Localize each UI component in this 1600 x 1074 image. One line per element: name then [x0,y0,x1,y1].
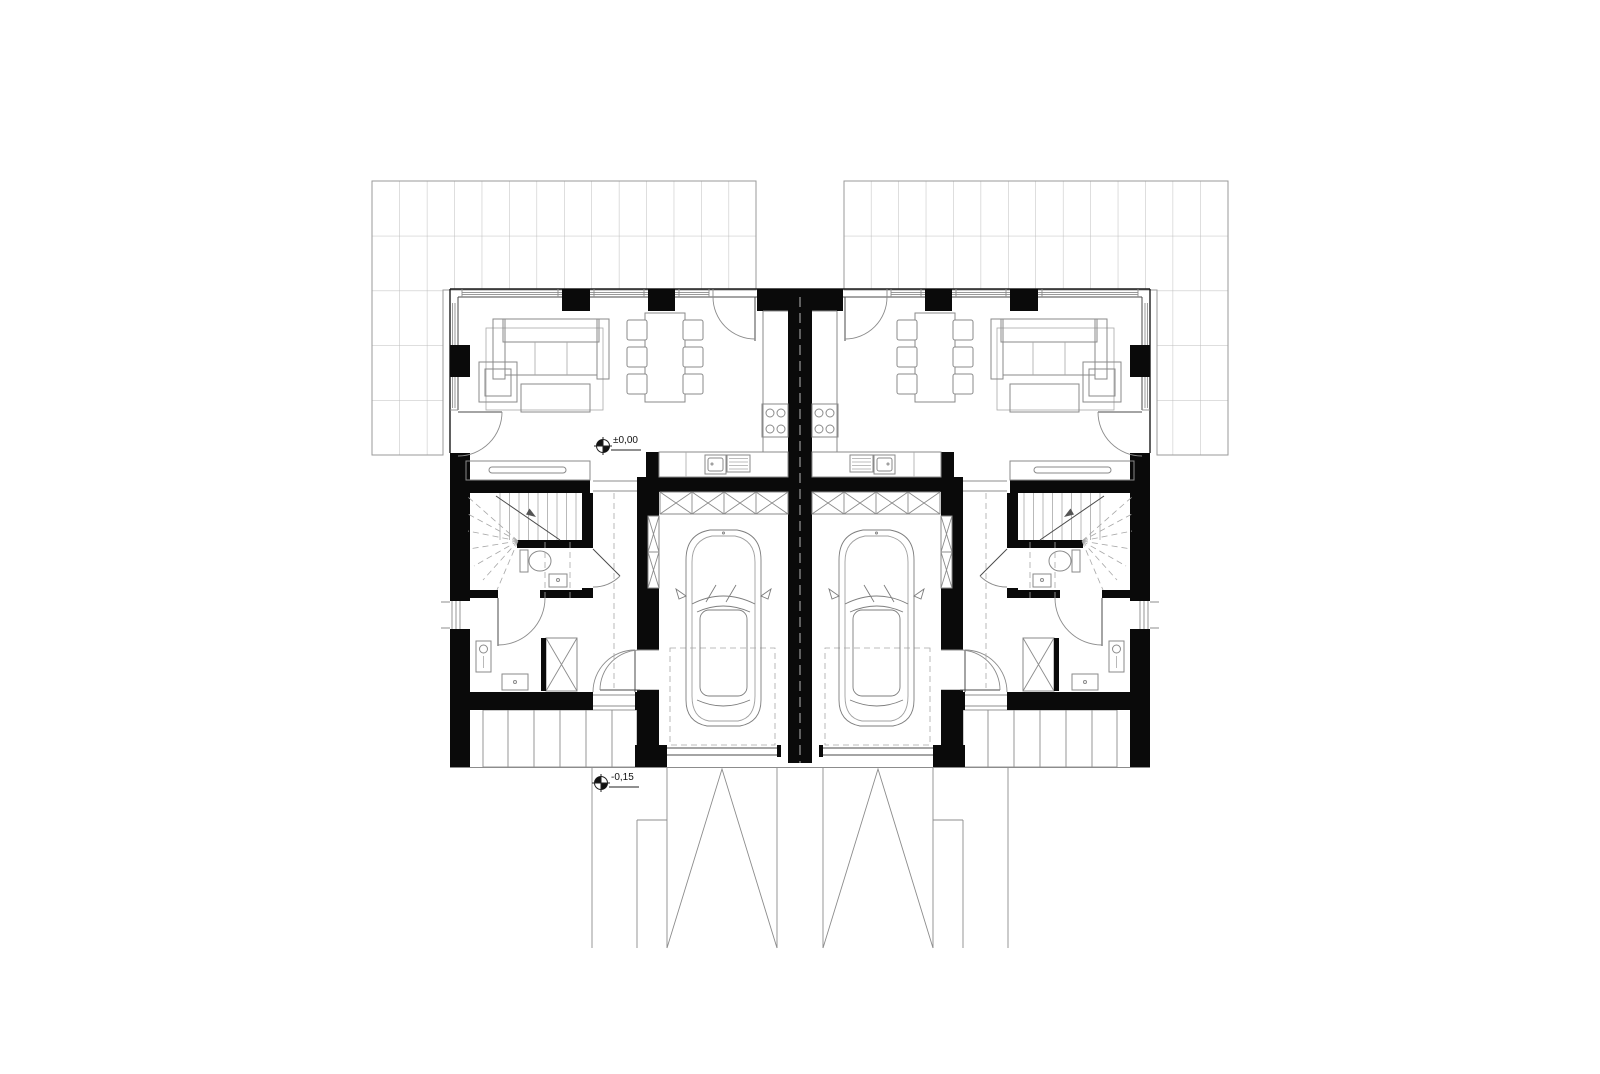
facade-pier [562,289,590,311]
facade-pier [450,345,470,377]
unit-right [800,181,1228,948]
rear-terrace-door [713,297,755,341]
side-wall [450,453,470,601]
garage-door-swing-mark [667,769,777,948]
hall-wall [540,590,593,598]
side-wall [450,629,470,692]
dining-area [627,313,703,402]
driveway [592,768,777,948]
stair-handrail [496,496,560,540]
garage-lintel-bracing [660,492,788,514]
wc-sink [549,574,567,587]
wc-door [593,549,620,587]
wc-room [520,540,570,598]
side-window [441,601,460,629]
dining-table [645,313,685,402]
rear-window [697,700,750,706]
porch-steps [483,710,637,767]
toilet-tank [520,550,528,572]
garage-wall-bracing [648,516,659,588]
unit-left [372,181,800,948]
toilet [529,551,551,571]
stair-direction-arrow [526,509,536,518]
cooktop [762,404,788,437]
terrace-door [458,412,502,456]
shoe-cabinet [502,674,528,690]
garage-door [663,745,781,757]
coffee-table [521,384,590,412]
wipers [706,585,736,602]
party-wall [788,311,800,763]
armchair [479,362,517,402]
garage-hall-door [600,650,640,690]
kitchen-counter-bottom [659,452,788,477]
dining-chairs [627,320,703,394]
entry-header-wall [757,289,800,311]
level-label-exterior: -0,15 [611,772,634,783]
kitchen [659,311,788,477]
level-marker-exterior: -0,15 [592,772,639,792]
service-shaft [541,638,577,691]
garage-front-wall [646,477,788,492]
wc-wall [517,540,582,548]
roof-plane [372,181,756,455]
stair-wall [582,493,593,548]
kitchen-pillar [646,452,659,477]
floor-plan-canvas: ±0,00 -0,15 [0,0,1600,1074]
duplex-ground-floor-plan: ±0,00 -0,15 [0,0,1600,1074]
living-room [466,319,609,480]
drainer [727,455,750,472]
hall-wall [450,590,498,598]
hall-door [498,598,545,646]
garage [660,492,788,757]
car [676,530,771,726]
garage-jamb [635,745,667,767]
sideboard [466,461,590,480]
car-roof [700,610,747,696]
level-marker-ground-floor: ±0,00 [594,435,641,455]
exterior-works [450,710,800,948]
side-mirrors [676,589,771,599]
level-label-ground-floor: ±0,00 [613,435,638,446]
stair-wall [450,480,590,493]
facade-pier [648,289,675,311]
entry-wall [450,692,593,710]
